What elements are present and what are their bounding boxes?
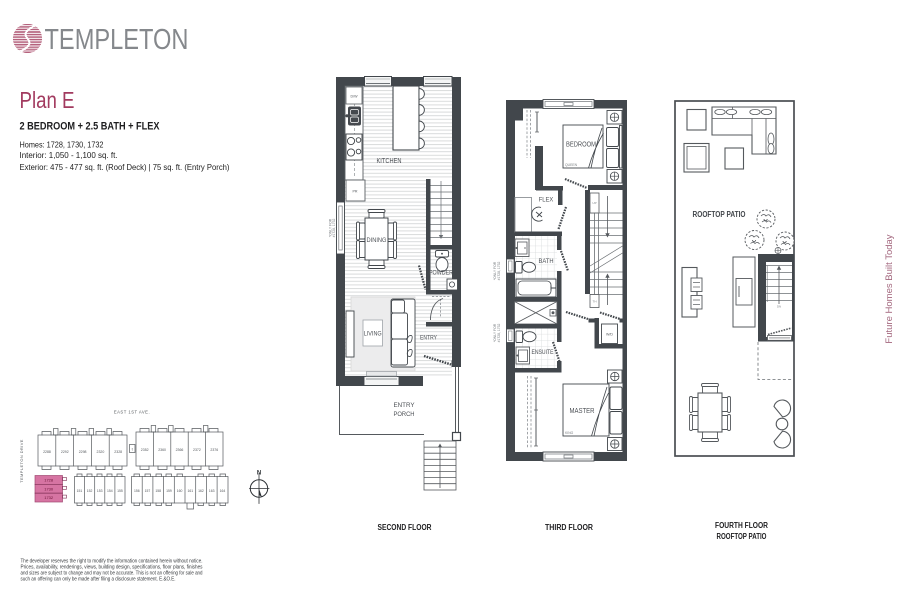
svg-text:2376: 2376 [210,448,218,452]
svg-text:2292: 2292 [61,450,69,454]
svg-text:W/D: W/D [606,333,613,337]
svg-text:ROOFTOP PATIO: ROOFTOP PATIO [717,531,767,541]
svg-text:163: 163 [209,489,215,493]
svg-text:Homes: 1728, 1730, 1732: Homes: 1728, 1730, 1732 [20,140,104,150]
svg-text:2366: 2366 [176,448,184,452]
svg-text:#1728, 1732: #1728, 1732 [332,218,336,237]
svg-text:2320: 2320 [97,450,105,454]
svg-text:D/W: D/W [351,95,359,99]
svg-text:TH: TH [593,300,597,304]
svg-text:164: 164 [220,489,226,493]
svg-text:1730: 1730 [44,486,54,491]
svg-text:#1728, 1732: #1728, 1732 [497,323,501,342]
svg-text:Exterior: 475 - 477 sq. ft. (R: Exterior: 475 - 477 sq. ft. (Roof Deck) … [20,162,230,172]
svg-text:153: 153 [97,489,103,493]
svg-text:160: 160 [177,489,183,493]
svg-text:158: 158 [155,489,161,493]
svg-text:2360: 2360 [158,448,166,452]
svg-text:2298: 2298 [79,450,87,454]
svg-text:N: N [257,471,261,477]
svg-text:2352: 2352 [141,448,149,452]
svg-text:155: 155 [117,489,123,493]
svg-text:1728: 1728 [44,478,54,483]
svg-text:KITCHEN: KITCHEN [377,156,402,165]
svg-text:FOURTH FLOOR: FOURTH FLOOR [715,520,769,530]
svg-text:DINING: DINING [367,237,387,244]
svg-text:ENSUITE: ENSUITE [532,349,554,356]
svg-text:PR: PR [353,190,358,194]
svg-text:THIRD FLOOR: THIRD FLOOR [545,522,594,532]
svg-text:152: 152 [87,489,93,493]
svg-text:TEMPLETON DRIVE: TEMPLETON DRIVE [19,439,24,483]
svg-text:UP: UP [592,201,596,205]
svg-text:2328: 2328 [114,450,122,454]
svg-text:PORCH: PORCH [394,411,415,418]
svg-text:Future Homes Built Today: Future Homes Built Today [884,234,895,343]
svg-text:161: 161 [187,489,193,493]
svg-text:BATH: BATH [539,258,554,265]
svg-text:such an offering can only be m: such an offering can only be made after … [21,577,176,583]
svg-text:159: 159 [166,489,172,493]
svg-text:#1728, 1732: #1728, 1732 [497,261,501,280]
svg-text:157: 157 [145,489,151,493]
svg-text:151: 151 [77,489,83,493]
svg-text:162: 162 [198,489,204,493]
svg-text:SECOND FLOOR: SECOND FLOOR [378,522,433,532]
svg-text:156: 156 [134,489,140,493]
svg-text:EAST 1ST AVE.: EAST 1ST AVE. [114,410,150,415]
svg-text:DN: DN [777,305,781,309]
svg-text:MASTER: MASTER [570,406,595,415]
svg-text:ROOFTOP PATIO: ROOFTOP PATIO [693,210,746,219]
svg-text:FLEX: FLEX [539,197,554,204]
svg-text:KING: KING [565,431,574,435]
svg-text:2 BEDROOM + 2.5 BATH + FLEX: 2 BEDROOM + 2.5 BATH + FLEX [20,121,161,133]
svg-text:TEMPLETON: TEMPLETON [45,24,189,56]
svg-text:POWDER: POWDER [429,270,453,277]
svg-text:LIVING: LIVING [364,332,382,338]
svg-text:Plan E: Plan E [20,87,75,113]
svg-text:ENTRY: ENTRY [420,335,437,342]
svg-text:2372: 2372 [193,448,201,452]
svg-text:ENTRY: ENTRY [394,402,415,409]
svg-text:154: 154 [107,489,113,493]
svg-text:QUEEN: QUEEN [565,163,578,167]
svg-text:BEDROOM: BEDROOM [566,140,596,149]
svg-text:1732: 1732 [44,495,54,500]
svg-text:2288: 2288 [43,450,51,454]
svg-text:Interior: 1,050 - 1,100 sq. ft: Interior: 1,050 - 1,100 sq. ft. [20,150,118,160]
